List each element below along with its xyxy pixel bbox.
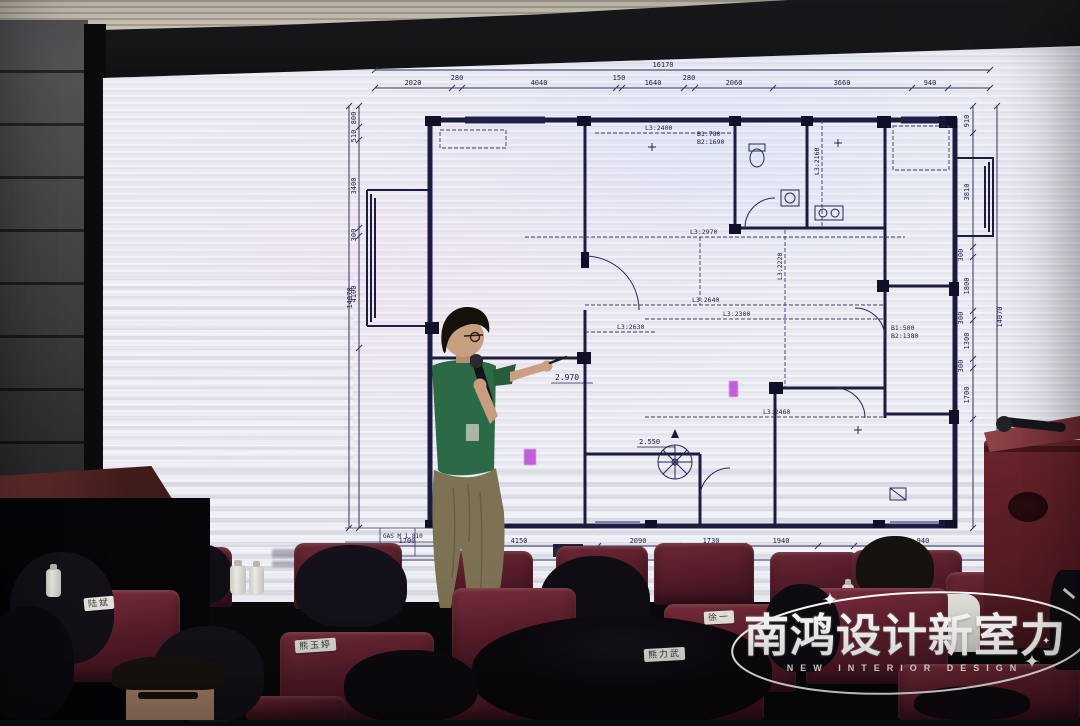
svg-text:300: 300 <box>350 229 358 242</box>
svg-text:940: 940 <box>924 79 937 87</box>
svg-text:L3:2160: L3:2160 <box>813 148 821 175</box>
svg-text:300: 300 <box>957 312 965 325</box>
water-bottle <box>230 565 246 594</box>
svg-text:1300: 1300 <box>963 333 971 350</box>
video-artifact <box>729 381 738 397</box>
svg-text:2.550: 2.550 <box>639 438 660 446</box>
svg-text:3810: 3810 <box>963 184 971 201</box>
svg-text:L3:2460: L3:2460 <box>763 408 790 416</box>
lectern-hole <box>1008 492 1048 522</box>
audience-hair <box>112 656 224 690</box>
svg-text:800: 800 <box>350 112 358 125</box>
laser-pointer <box>550 357 566 363</box>
svg-text:B2:1690: B2:1690 <box>697 138 724 146</box>
audience-head <box>344 650 478 722</box>
svg-text:1800: 1800 <box>963 278 971 295</box>
glasses-icon <box>138 692 198 699</box>
svg-text:B2:1380: B2:1380 <box>891 332 918 340</box>
seat-back <box>246 696 346 720</box>
presenter-shirt <box>432 360 496 475</box>
svg-text:L3:2630: L3:2630 <box>617 323 644 331</box>
svg-text:L3:2640: L3:2640 <box>692 296 719 304</box>
svg-text:510: 510 <box>350 130 358 143</box>
svg-text:300: 300 <box>957 249 965 262</box>
svg-text:B1:500: B1:500 <box>891 324 915 332</box>
audience-head-large <box>472 616 772 726</box>
svg-text:14070: 14070 <box>996 306 1004 327</box>
presenter-mic-hand <box>474 379 487 392</box>
svg-text:3400: 3400 <box>350 178 358 195</box>
svg-text:150: 150 <box>613 74 626 82</box>
plan-fixtures <box>648 139 906 500</box>
screen-banding-left <box>103 276 353 476</box>
microphone-head-icon <box>996 416 1012 432</box>
logo-subtitle: NEW INTERIOR DESIGN <box>730 663 1080 673</box>
svg-text:L3:2400: L3:2400 <box>645 124 672 132</box>
svg-text:2090: 2090 <box>630 537 647 545</box>
svg-text:3660: 3660 <box>834 79 851 87</box>
shirt-badge <box>466 424 479 441</box>
svg-text:910: 910 <box>963 115 971 128</box>
svg-text:B1:780: B1:780 <box>697 130 721 138</box>
watermark-logo: ✦ ✦ ✦ ✦ 南鸿设计新室力 NEW INTERIOR DESIGN <box>730 583 1080 708</box>
svg-text:1940: 1940 <box>773 537 790 545</box>
microphone-head-icon <box>469 354 483 368</box>
svg-text:4100: 4100 <box>350 286 358 303</box>
water-bottle <box>249 566 264 594</box>
presenter <box>398 302 578 612</box>
svg-text:280: 280 <box>451 74 464 82</box>
svg-text:4040: 4040 <box>531 79 548 87</box>
lecture-photo: { "logo": { "title": "南鸿设计新室力", "subtitl… <box>0 0 1080 720</box>
presenter-glasses <box>464 335 483 336</box>
svg-text:300: 300 <box>957 360 965 373</box>
logo-title: 南鸿设计新室力 <box>730 599 1080 664</box>
stair-arrow <box>671 429 679 438</box>
svg-text:L3:2300: L3:2300 <box>723 310 750 318</box>
audience-head <box>295 545 407 627</box>
seat-name-tag: 熊力武 <box>644 647 686 662</box>
svg-text:L3:2220: L3:2220 <box>776 253 784 280</box>
water-bottle <box>46 569 61 597</box>
svg-text:280: 280 <box>683 74 696 82</box>
svg-text:1640: 1640 <box>645 79 662 87</box>
svg-text:L3:2970: L3:2970 <box>690 228 717 236</box>
seat-name-tag: 陆斌 <box>83 596 114 612</box>
svg-text:1700: 1700 <box>963 387 971 404</box>
svg-text:16170: 16170 <box>652 61 673 69</box>
svg-text:2060: 2060 <box>726 79 743 87</box>
svg-text:2020: 2020 <box>405 79 422 87</box>
